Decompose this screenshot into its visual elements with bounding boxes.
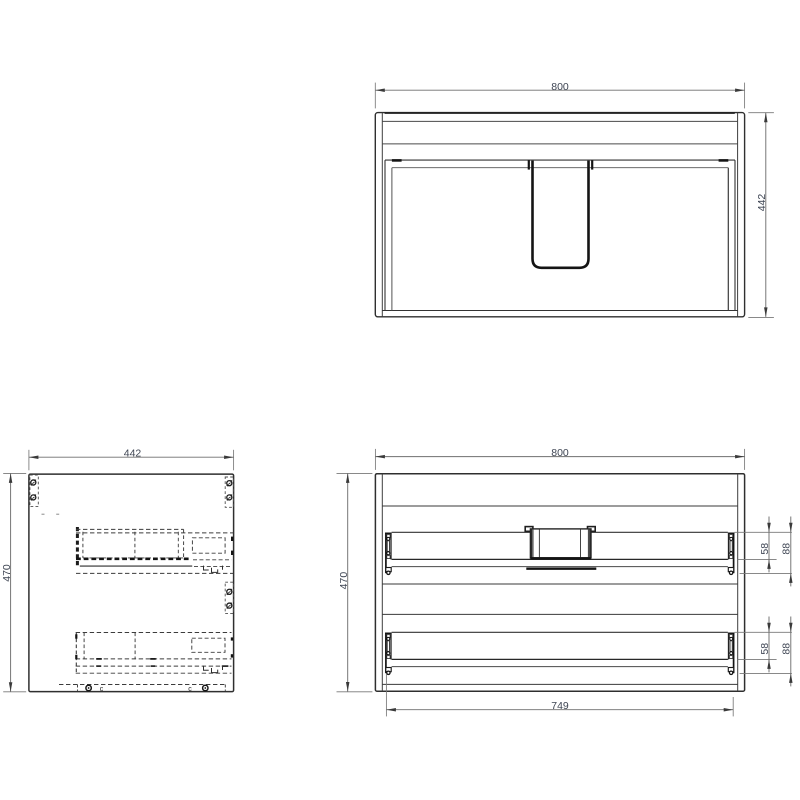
svg-text:749: 749	[551, 700, 569, 712]
svg-text:58: 58	[759, 643, 771, 655]
svg-text:88: 88	[781, 543, 793, 555]
svg-text:470: 470	[338, 572, 350, 590]
svg-text:442: 442	[756, 194, 768, 212]
svg-text:800: 800	[551, 81, 569, 93]
svg-text:88: 88	[781, 643, 793, 655]
svg-text:800: 800	[551, 447, 569, 459]
svg-text:442: 442	[124, 448, 142, 460]
svg-text:58: 58	[759, 543, 771, 555]
svg-text:470: 470	[1, 564, 13, 582]
svg-text:c: c	[188, 686, 192, 693]
svg-text:c: c	[100, 686, 104, 693]
